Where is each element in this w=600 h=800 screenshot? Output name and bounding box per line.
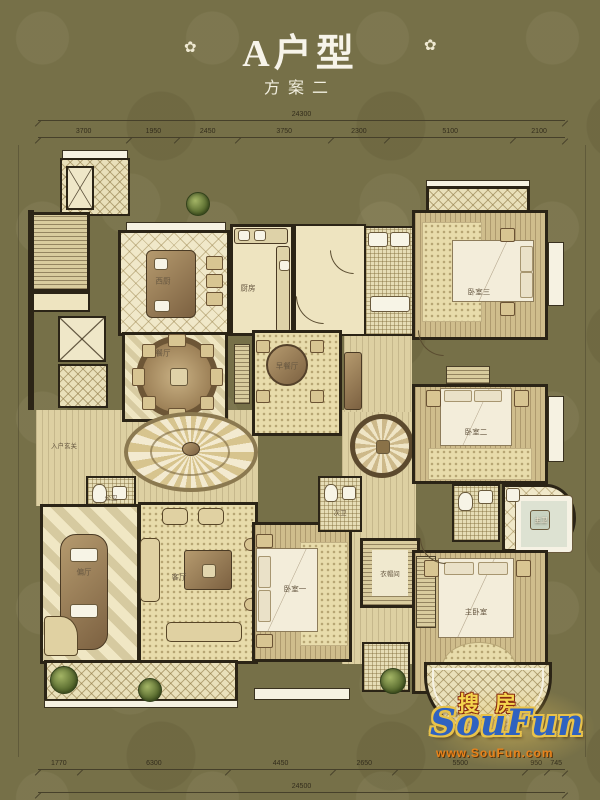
sink [506,488,520,502]
plant-icon [380,668,406,694]
dimension-segment: 2300 [331,124,388,138]
landing [30,292,90,312]
sink [279,260,290,271]
pillow [444,562,474,575]
nightstand [514,390,529,407]
table-decor [70,548,98,562]
plant-icon [138,678,162,702]
dimension-total-top: 24300 [38,106,565,121]
shaft [66,166,94,210]
sofa [140,538,160,602]
flourish-icon: ✿ [424,36,437,54]
table-decor [202,564,216,578]
plant-icon [50,666,78,694]
room-label-living: 客厅 [172,572,187,583]
toilet [324,484,338,502]
toilet [458,492,473,511]
washer [390,232,410,247]
page-title: A户型 [0,22,600,77]
bay-window [548,396,564,462]
stove [238,230,250,241]
chair [206,274,223,288]
dimension-segment: 1950 [129,124,177,138]
room-label-master-bath: 主卫 [535,514,548,524]
plant-icon [186,192,210,216]
nightstand [426,390,441,407]
pillow [444,390,472,402]
staircase [30,212,90,292]
floorplan-page: ✿ A户型 ✿ 方案二 24300 3700 1950 2450 3750 23… [0,0,600,800]
wall-segment [28,210,34,410]
chair [142,344,156,358]
room-label-master: 主卧室 [465,607,488,618]
room-label-second-bath: 次卫 [334,507,347,517]
cabinet [234,344,250,404]
chair [256,340,270,353]
bay-window [254,688,350,700]
window-band [44,700,238,708]
nightstand [516,560,531,577]
room-label-bedroom1: 卧室一 [284,584,307,595]
island-hob [154,300,170,312]
chair [206,292,223,306]
stove [254,230,266,241]
chair [142,396,156,410]
table-centerpiece [170,368,188,386]
dimension-segment: 3700 [38,124,129,138]
room-label-breakfast: 早餐厅 [276,361,299,372]
sink [342,486,356,500]
chair [206,256,223,270]
room-label-bedroom2: 卧室二 [465,427,488,438]
armchair [162,508,188,525]
foyer-table [182,442,200,456]
sink [478,490,493,504]
dimension-segment: 3750 [238,124,331,138]
dimension-segment: 2650 [333,756,395,770]
nightstand [256,634,273,648]
room-label-guest-bath: 公卫 [105,492,118,502]
dimension-segment: 5100 [387,124,513,138]
chair [200,344,214,358]
rug [428,448,532,480]
sofa [166,622,242,642]
room-label-kitchen: 厨房 [241,283,256,294]
corridor-top [294,224,366,336]
island-sink [154,258,168,270]
nightstand [256,534,273,548]
pillow [258,556,271,588]
vanity [370,296,410,312]
soufun-watermark: 搜房 SouFun www.SouFun.com [428,690,594,768]
room-label-west-kitchen: 西厨 [156,276,171,287]
chair [200,396,214,410]
cabinet [344,352,362,410]
rug-center [376,440,390,454]
chair [168,334,186,347]
washer [368,232,388,247]
dimension-segment: 2100 [513,124,565,138]
corner-sofa [44,616,78,656]
nightstand [500,228,515,242]
chair [132,368,145,386]
chair [256,390,270,403]
pillow [474,390,502,402]
dimension-vline-left [18,145,19,757]
armchair [198,508,224,525]
kitchen-counter [276,246,290,332]
nightstand [500,302,515,316]
pillow [520,246,533,272]
dimension-row-top: 3700 1950 2450 3750 2300 5100 2100 [38,124,565,138]
room-label-bedroom3: 卧室三 [468,287,491,298]
utility-room [58,364,108,408]
room-label-dining: 餐厅 [156,348,171,359]
dimension-segment: 6300 [80,756,228,770]
room-label-foyer: 入户玄关 [51,440,77,450]
page-subtitle: 方案二 [0,74,600,98]
dimension-segment: 2450 [177,124,237,138]
chair [210,368,223,386]
pillow [520,272,533,298]
table-decor [70,604,98,618]
room-label-closet: 衣帽间 [380,568,400,578]
dimension-total-bottom: 24500 [38,778,565,793]
room-label-side-hall: 偏厅 [77,567,92,578]
watermark-logo: SouFun [430,702,583,744]
pillow [258,590,271,622]
dimension-segment: 1770 [38,756,80,770]
wardrobe [446,366,490,384]
dimension-vline-right [585,145,586,757]
watermark-url: www.SouFun.com [436,746,554,760]
door-arc [418,330,444,356]
pillow [478,562,508,575]
elevator [58,316,106,362]
chair [310,340,324,353]
bay-window [548,242,564,306]
dimension-segment: 4450 [228,756,333,770]
chair [310,390,324,403]
room-second-bath [318,476,362,532]
